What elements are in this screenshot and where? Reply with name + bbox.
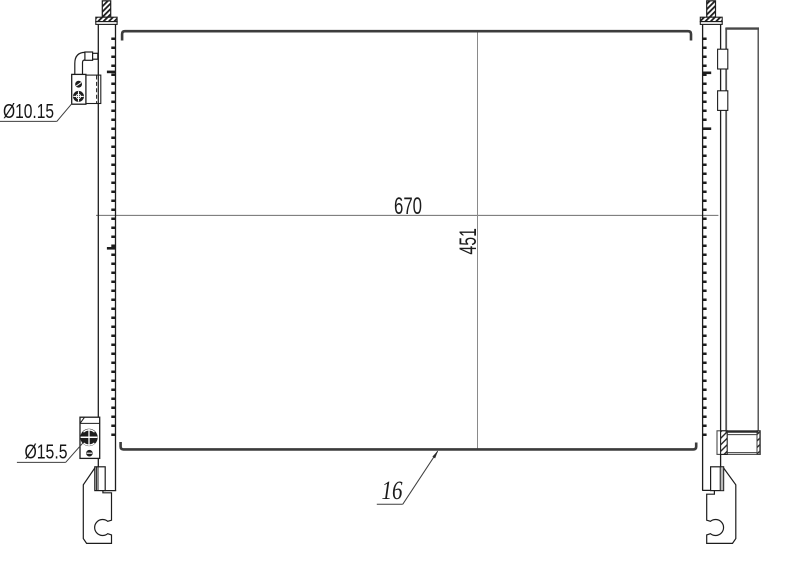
svg-text:670: 670 <box>394 193 422 220</box>
svg-text:451: 451 <box>455 228 482 255</box>
svg-text:16: 16 <box>382 476 403 505</box>
svg-text:Ø15.5: Ø15.5 <box>25 442 68 464</box>
svg-text:Ø10.15: Ø10.15 <box>3 101 54 123</box>
